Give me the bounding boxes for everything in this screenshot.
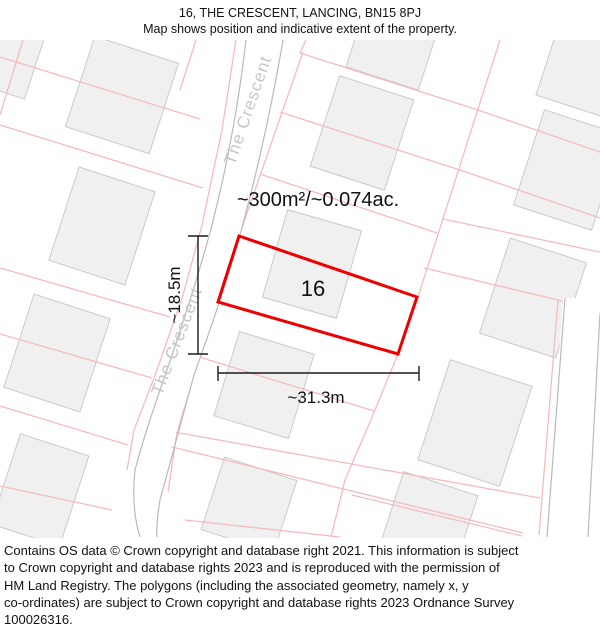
height-dimension-label: ~18.5m xyxy=(165,266,184,323)
plot-number-label: 16 xyxy=(301,276,325,301)
copyright-line: to Crown copyright and database rights 2… xyxy=(4,559,600,576)
footer-copyright: Contains OS data © Crown copyright and d… xyxy=(0,539,600,625)
page-title: 16, THE CRESCENT, LANCING, BN15 8PJ xyxy=(0,0,600,20)
header: 16, THE CRESCENT, LANCING, BN15 8PJ Map … xyxy=(0,0,600,40)
area-label: ~300m²/~0.074ac. xyxy=(237,189,399,211)
copyright-line: Contains OS data © Crown copyright and d… xyxy=(4,542,600,559)
property-map-page: 16, THE CRESCENT, LANCING, BN15 8PJ Map … xyxy=(0,0,600,625)
width-dimension-label: ~31.3m xyxy=(287,388,344,407)
map-canvas: The Crescent The Crescent ~18.5m ~31.3m … xyxy=(0,40,600,538)
page-subtitle: Map shows position and indicative extent… xyxy=(0,20,600,36)
copyright-line: 100026316. xyxy=(4,611,600,625)
copyright-line: HM Land Registry. The polygons (includin… xyxy=(4,577,600,594)
copyright-line: co-ordinates) are subject to Crown copyr… xyxy=(4,594,600,611)
